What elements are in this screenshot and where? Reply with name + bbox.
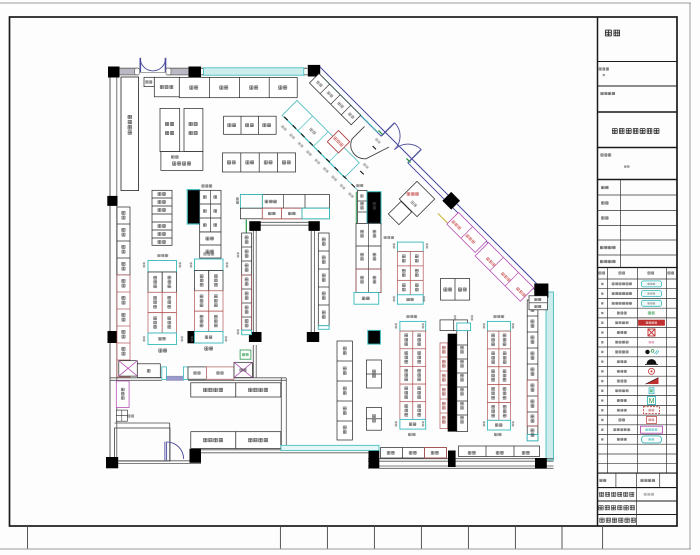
svg-text:M: M	[649, 398, 655, 405]
